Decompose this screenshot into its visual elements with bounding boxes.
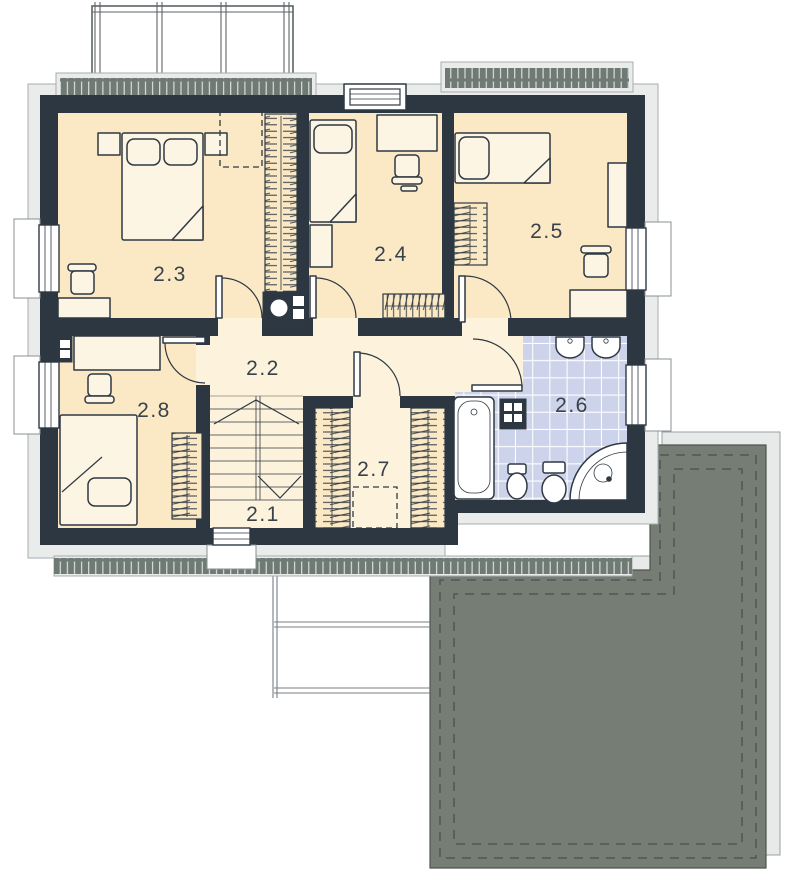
pillow: [314, 125, 352, 153]
door-opening-2-5: [462, 318, 508, 336]
room-label-2-1: 2.1: [246, 503, 280, 526]
chair-seat: [88, 374, 111, 396]
chair-back: [68, 264, 96, 271]
chair-back: [85, 396, 114, 403]
washbasin: [592, 337, 620, 358]
service-shaft: [58, 336, 72, 362]
pillow: [164, 139, 197, 165]
nightstand: [310, 225, 332, 267]
door-opening-2-3: [218, 318, 262, 336]
roof-edge-hatch-top-left: [60, 78, 312, 95]
wardrobe-hatch: [315, 408, 350, 528]
nightstand: [205, 133, 227, 155]
chimney: [344, 84, 406, 110]
floor-plan-page: 2.1 2.2 2.3 2.4 2.5 2.6 2.7 2.8: [0, 0, 786, 880]
door-opening-2-4: [313, 318, 358, 336]
room-label-2-5: 2.5: [530, 220, 564, 243]
roof-edge-hatch-top-right: [445, 68, 629, 88]
room-label-2-6: 2.6: [555, 394, 589, 417]
chair-seat: [584, 254, 608, 277]
door-opening-2-7: [353, 396, 400, 408]
bidet: [507, 464, 527, 499]
chair-base: [401, 186, 417, 191]
pillow: [88, 478, 131, 506]
window-left-2-3: [14, 219, 59, 298]
toilet: [542, 462, 566, 503]
room-label-2-2: 2.2: [246, 357, 280, 380]
floor-plan-drawing: 2.1 2.2 2.3 2.4 2.5 2.6 2.7 2.8: [0, 0, 786, 880]
door-opening-2-8: [196, 345, 210, 385]
service-shaft: [263, 292, 305, 324]
pillow: [459, 137, 489, 179]
washbasin: [556, 337, 584, 358]
chair-seat: [71, 271, 94, 294]
balcony-railing: [92, 2, 293, 78]
nightstand: [98, 133, 120, 155]
single-bed: [60, 415, 137, 525]
pillow: [127, 139, 160, 165]
pergola-edge-lines: [273, 574, 430, 698]
room-label-2-3: 2.3: [153, 263, 187, 286]
cabinet: [608, 163, 627, 227]
wardrobe-hatch: [454, 203, 487, 265]
room-label-2-4: 2.4: [374, 243, 408, 266]
desk: [58, 298, 110, 318]
window-left-2-8: [14, 356, 59, 434]
bathtub: [454, 397, 494, 499]
chair-back: [392, 177, 422, 184]
room-label-2-7: 2.7: [357, 458, 391, 481]
roof-edge-hatch-bottom: [54, 558, 632, 574]
window-bottom-stairs: [207, 528, 256, 569]
window-right-2-6: [626, 359, 671, 431]
chair-back: [581, 246, 611, 253]
service-shaft: [500, 399, 526, 429]
desk: [570, 290, 627, 318]
window-right-2-5: [626, 222, 671, 296]
desk: [74, 336, 160, 370]
chair-seat: [395, 155, 419, 177]
room-label-2-8: 2.8: [137, 399, 171, 422]
desk: [377, 115, 437, 151]
